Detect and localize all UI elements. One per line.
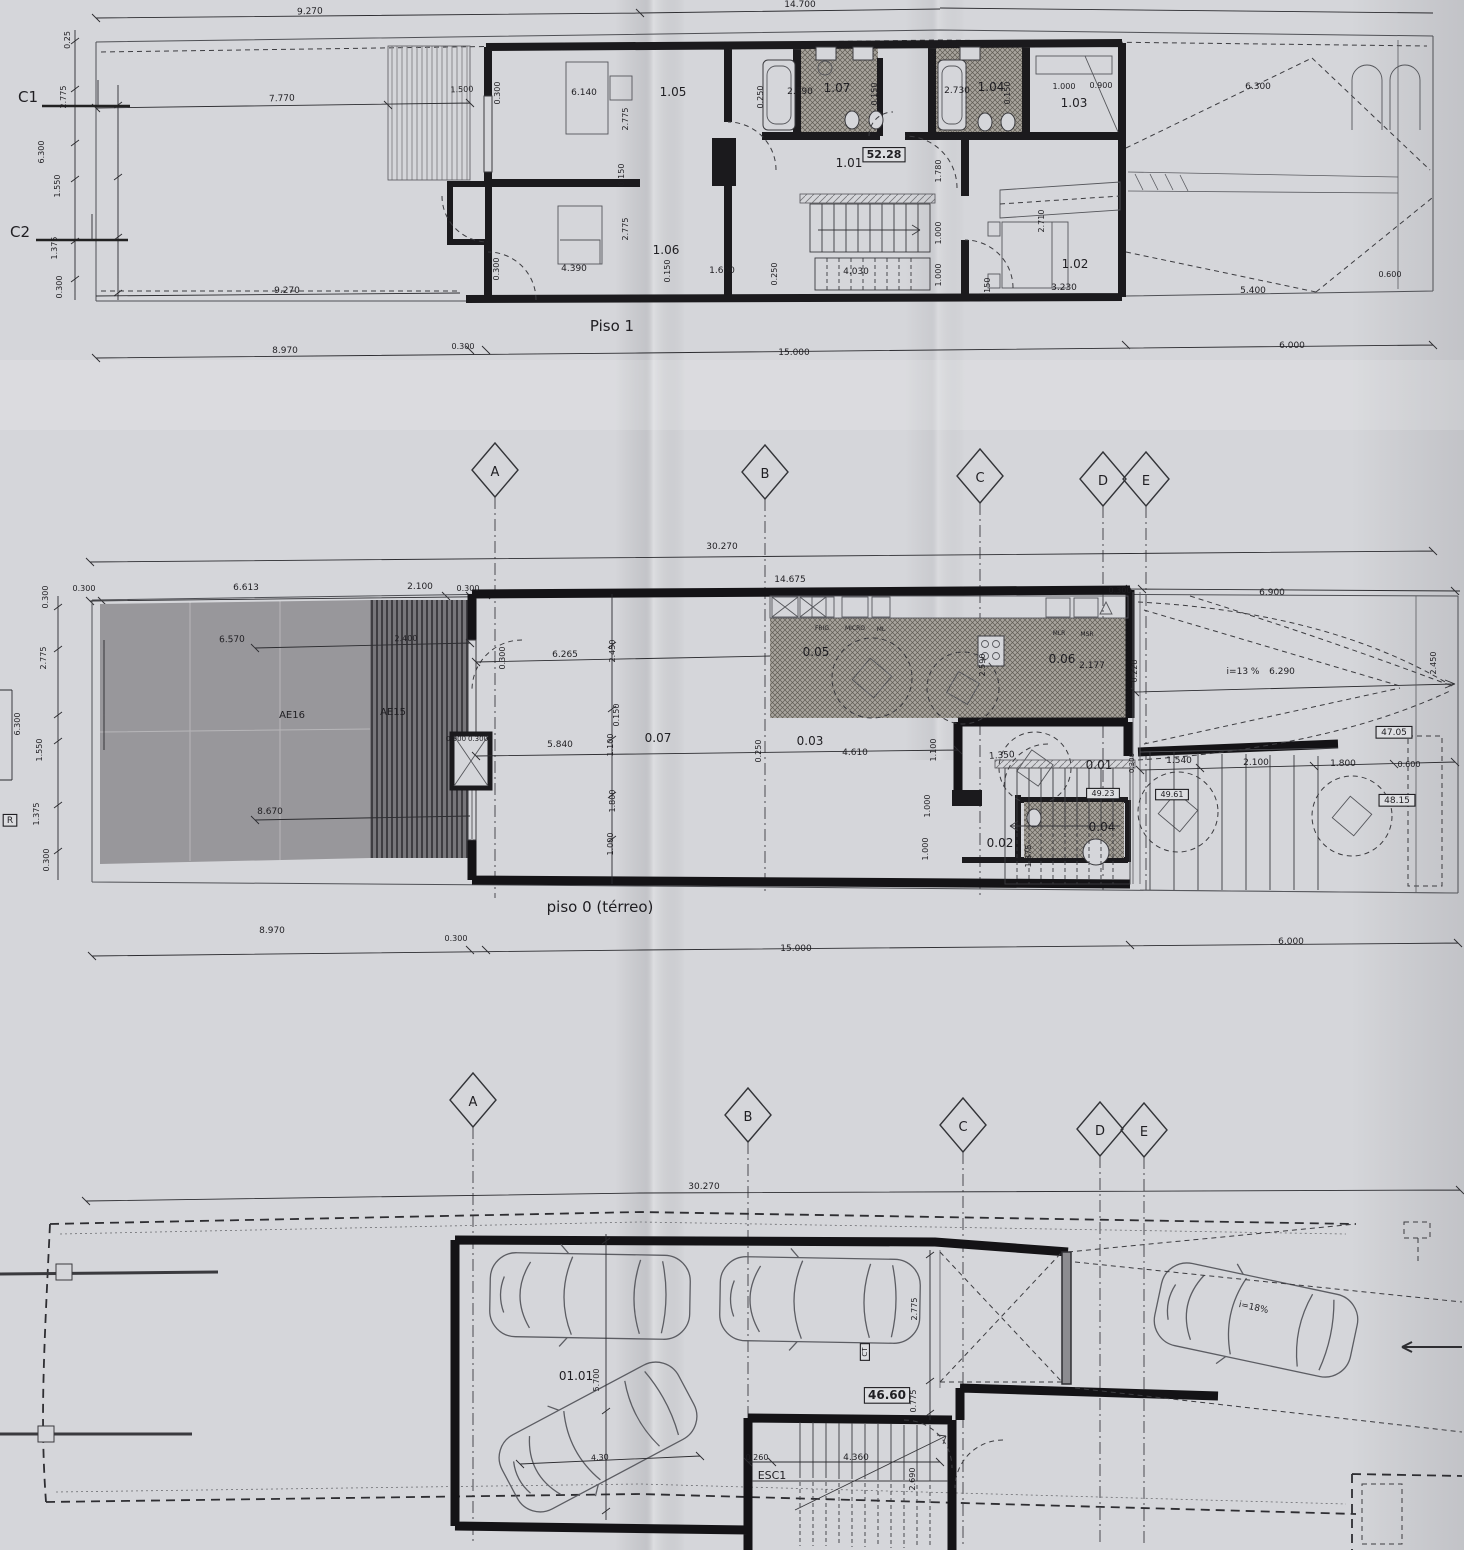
room-label: 1.05 — [660, 85, 687, 99]
dim-label-text: 6.265 — [552, 650, 578, 660]
grid-letter-text: E — [1140, 1125, 1148, 1140]
dim-label: 6.265 — [552, 650, 578, 660]
dim-label-text: 9.270 — [297, 7, 323, 18]
dim-label: 0.300 — [468, 735, 488, 743]
dim-label: 7.770 — [269, 94, 295, 105]
dim-label-text: 1.600 — [709, 266, 735, 276]
level-box: 49.23 — [1087, 788, 1120, 798]
grid-letter: C — [975, 471, 984, 486]
dim-label-text: 0.25 — [63, 31, 72, 49]
grid-letter: D — [1095, 1124, 1105, 1139]
wall-block — [712, 138, 736, 186]
dim-label: 2.177 — [1079, 661, 1105, 671]
appliance-label: MICRO — [845, 625, 865, 632]
sink-icon — [853, 47, 873, 60]
dim-label-text: 2.775 — [910, 1298, 919, 1321]
dim-label: 0.150 — [663, 260, 672, 283]
dim-label: 6.300 — [13, 713, 22, 736]
dim-label: 2.590 — [787, 87, 813, 97]
dim-label-text: 6.000 — [1279, 341, 1305, 351]
dim-label-text: 6.570 — [219, 635, 245, 645]
level-box: 48.15 — [1379, 794, 1415, 806]
room-label: 0.07 — [645, 731, 672, 745]
dim-label: 0.150 — [870, 83, 879, 106]
room-label: 0.06 — [1049, 652, 1076, 666]
deck-ae15 — [370, 600, 470, 858]
dim-label: 2.775 — [621, 218, 630, 241]
dim-label-text: 0.150 — [617, 164, 626, 187]
dim-label-text: 6.300 — [13, 713, 22, 736]
room-label: 0.04 — [1089, 820, 1116, 834]
appliance-label: ML — [877, 626, 886, 633]
dim-label-text: 1.375 — [32, 803, 41, 826]
level-box-text: 48.15 — [1384, 796, 1410, 806]
dim-label: 8.970 — [259, 926, 285, 936]
room-label-text: 0.04 — [1089, 820, 1116, 834]
dim-label: 1.550 — [53, 175, 62, 198]
zone-label-text: AE16 — [279, 710, 305, 721]
section-ref: R — [3, 814, 17, 826]
dim-label: 2.775 — [39, 647, 48, 670]
dim-label: 2.710 — [1037, 210, 1046, 233]
section-ref-text: C1 — [18, 88, 38, 106]
dim-label-text: 1.000 — [934, 264, 943, 287]
appliance-label-text: MICRO — [845, 625, 865, 632]
dim-label-text: 3.230 — [1051, 283, 1077, 293]
dim-label-text: 0.775 — [909, 1390, 918, 1413]
dim-label: 2.730 — [944, 86, 970, 96]
dim-label-text: 1.540 — [1166, 756, 1192, 766]
level-box-text: 49.23 — [1092, 789, 1115, 798]
dim-label: 6.570 — [219, 635, 245, 645]
dim-label-text: 0.150 — [1003, 82, 1012, 105]
dim-label-text: 0.300 — [498, 647, 507, 670]
dim-label: 5.840 — [547, 740, 573, 750]
plan-drawing: 9.27014.700C1C20.252.7756.3001.5501.3750… — [0, 0, 1464, 1550]
ref-label: ESC1 — [758, 1469, 787, 1482]
dim-label: 6.300 — [37, 141, 46, 164]
dim-label-text: 0.300 — [1109, 586, 1132, 595]
dim-label: 4.30 — [591, 1453, 609, 1463]
dim-label: 0.250 — [756, 86, 765, 109]
plan-title-text: Piso 1 — [590, 317, 634, 335]
grid-letter-text: C — [958, 1120, 967, 1135]
section-ref: C2 — [10, 223, 30, 241]
dim-label-text: 6.900 — [1259, 588, 1285, 598]
dim-label: 4.360 — [843, 1453, 869, 1463]
dim-label: 4.030 — [843, 267, 869, 277]
dim-label-text: 0.250 — [770, 263, 779, 286]
dim-label-text: 0.250 — [754, 740, 763, 763]
level-box: 47.05 — [1376, 726, 1412, 738]
dim-label: 0.300 — [41, 586, 50, 609]
room-label: 1.06 — [653, 243, 680, 257]
level-box: 49.61 — [1156, 789, 1189, 799]
deck-hatch-strip — [388, 46, 470, 180]
dim-label-text: 6.300 — [1245, 82, 1271, 92]
level-box: 46.60 — [864, 1388, 909, 1404]
dim-label-text: 1.800 — [1330, 759, 1356, 769]
dim-label: 1.800 — [608, 790, 617, 813]
dim-label-text: 1.350 — [989, 750, 1016, 762]
room-label-text: 1.03 — [1061, 96, 1088, 110]
grid-letter-text: B — [744, 1110, 753, 1125]
room-label-text: 1.04 — [978, 80, 1005, 94]
dim-label-text: 1.000 — [923, 795, 932, 818]
dim-label: 6.300 — [1245, 82, 1271, 92]
dim-label-text: 6.290 — [1269, 667, 1295, 677]
room-label-text: 1.06 — [653, 243, 680, 257]
dim-label-text: 4.610 — [842, 748, 868, 758]
grid-letter: C — [958, 1120, 967, 1135]
dim-label-text: 0.300 — [452, 342, 475, 351]
toilet-icon — [978, 113, 992, 131]
dim-label-text: 2.590 — [978, 654, 987, 677]
grid-letter: B — [761, 467, 770, 482]
dim-label: 2.100 — [407, 582, 433, 592]
dim-label-text: 2.450 — [1429, 652, 1438, 675]
dim-label: 1.000 — [606, 833, 615, 856]
dim-label-text: 0.900 — [446, 735, 466, 743]
dim-label: 1.550 — [35, 739, 44, 762]
dim-label: 4.390 — [561, 264, 587, 274]
toilet-icon — [845, 111, 859, 129]
dim-label-text: 2.450 — [608, 640, 617, 663]
room-label: 0.03 — [797, 734, 824, 748]
grid-letter-text: A — [469, 1095, 478, 1110]
dim-label-text: 0.600 — [1398, 760, 1421, 769]
dim-label: 0.600 — [1398, 760, 1421, 769]
dim-label-text: 0.300 — [73, 584, 96, 593]
washbasin-icon — [1083, 839, 1109, 865]
dim-label: 1.780 — [934, 160, 943, 183]
dim-label: 1.375 — [32, 803, 41, 826]
dim-label-text: 0.300 — [445, 934, 468, 943]
dim-label: 1.100 — [929, 739, 938, 762]
section-ref-text: R — [7, 816, 13, 826]
ref-label: CT — [860, 1344, 869, 1361]
dim-label: 0.300 — [457, 584, 480, 593]
dim-label-text: 1.000 — [921, 838, 930, 861]
dim-label: 14.700 — [784, 0, 816, 10]
dim-label: 0.150 — [617, 164, 626, 187]
ref-label-text: CT — [861, 1347, 869, 1357]
appliance-label-text: MSR — [1080, 631, 1093, 638]
dim-label: 0.300 — [492, 258, 501, 281]
grid-letter-text: C — [975, 471, 984, 486]
room-label: 1.01 — [836, 156, 863, 170]
room-label-text: 0.02 — [987, 836, 1014, 850]
dim-label-text: 2.590 — [787, 87, 813, 97]
dim-label: 0.300 — [1128, 753, 1136, 773]
grid-letter-text: B — [761, 467, 770, 482]
room-label-text: 0.01 — [1086, 758, 1113, 772]
room-label: 0.05 — [803, 645, 830, 659]
dim-label: 0.300 — [445, 934, 468, 943]
room-label: 1.07 — [824, 81, 851, 95]
room-label: 1.04 — [978, 80, 1005, 94]
grid-letter: A — [469, 1095, 478, 1110]
dim-label: 0.150 — [612, 704, 621, 727]
dim-label-text: 30.270 — [706, 542, 738, 552]
sink-icon — [960, 47, 980, 60]
dim-label: 15.000 — [778, 348, 810, 358]
paper-edge-shade — [1350, 0, 1464, 1550]
dim-label: 9.270 — [274, 286, 300, 296]
ramp-slope-label-text: i=13 % — [1227, 667, 1260, 677]
grid-letter: B — [744, 1110, 753, 1125]
dim-label: 2.100 — [1243, 758, 1269, 768]
plan-title: Piso 1 — [590, 317, 634, 335]
dim-label-text: 4.360 — [843, 1453, 869, 1463]
dim-label: 1.000 — [1053, 82, 1076, 91]
dim-label-text: 0.300 — [493, 82, 502, 105]
dim-label-text: 7.770 — [269, 94, 295, 105]
dim-label-text: 2.100 — [407, 582, 433, 592]
dim-label-text: 1.100 — [929, 739, 938, 762]
dim-label: 1.000 — [923, 795, 932, 818]
dim-label-text: 6.140 — [571, 88, 597, 98]
level-box-text: 47.05 — [1381, 728, 1407, 738]
appliance-label: MLR — [1053, 630, 1066, 637]
dim-label-text: 1.000 — [606, 833, 615, 856]
dim-label: 0.25 — [63, 31, 72, 49]
grid-letter: E — [1140, 1125, 1148, 1140]
dim-label-text: 0.250 — [756, 86, 765, 109]
dim-label-text: 1.100 — [606, 734, 615, 757]
dim-label: 1.350 — [989, 750, 1016, 762]
dim-label-text: 8.670 — [257, 807, 283, 817]
dim-label-text: 2.775 — [59, 86, 68, 109]
dim-label-text: 30.270 — [688, 1182, 720, 1192]
dim-label: 6.900 — [1259, 588, 1285, 598]
dim-label: 8.670 — [257, 807, 283, 817]
dim-label-text: 0.900 — [1090, 81, 1113, 90]
bidet-icon — [1001, 113, 1015, 131]
room-label-text: 0.03 — [797, 734, 824, 748]
zone-label: AE15 — [380, 707, 406, 718]
dim-label-text: 2.775 — [621, 108, 630, 131]
dim-label-text: 5.400 — [1240, 286, 1266, 296]
dim-label-text: 1.375 — [1024, 845, 1033, 868]
dim-label-text: 0.300 — [1128, 753, 1136, 773]
dim-label: 5.400 — [1240, 286, 1266, 296]
dim-label: 4.610 — [842, 748, 868, 758]
plan-title-text: piso 0 (térreo) — [547, 898, 654, 916]
dim-label: 0.300 — [42, 849, 51, 872]
dim-label: 5.700 — [592, 1369, 601, 1392]
grid-letter: E — [1142, 474, 1150, 489]
dim-label-text: 14.700 — [784, 0, 816, 10]
dim-label-text: 1.780 — [934, 160, 943, 183]
grid-letter-text: D — [1098, 474, 1108, 489]
grid-letter: A — [491, 465, 500, 480]
dim-label-text: 0.300 — [55, 276, 64, 299]
dim-label: 2.690 — [908, 1468, 917, 1491]
dim-label-text: 4.30 — [591, 1453, 609, 1463]
dim-label-text: 0.300 — [457, 584, 480, 593]
dim-label: 0.900 — [446, 735, 466, 743]
dim-label-text: 2.400 — [394, 634, 417, 643]
dim-label-text: 0.300 — [468, 735, 488, 743]
dim-label-text: 2.177 — [1079, 661, 1105, 671]
dim-label: 0.300 — [493, 82, 502, 105]
room-label-text: 0.07 — [645, 731, 672, 745]
room-label: 0.02 — [987, 836, 1014, 850]
dim-label-text: 1.550 — [35, 739, 44, 762]
dim-label-text: 1.000 — [1053, 82, 1076, 91]
dim-label-text: 2.775 — [39, 647, 48, 670]
dim-label: 1.375 — [1024, 845, 1033, 868]
dim-label: 0.300 — [498, 647, 507, 670]
room-label: 01.01 — [559, 1369, 593, 1383]
ref-label-text: ESC1 — [758, 1469, 787, 1482]
dim-label-text: 0.228 — [1130, 660, 1139, 683]
dim-label: 2.400 — [394, 634, 417, 643]
dim-label: 3.230 — [1051, 283, 1077, 293]
appliance-label: MSR — [1080, 631, 1093, 638]
window — [484, 96, 492, 172]
dim-label: 1.000 — [934, 264, 943, 287]
grid-letter: D — [1098, 474, 1108, 489]
room-label: 0.01 — [1086, 758, 1113, 772]
room-label-text: 0.06 — [1049, 652, 1076, 666]
dim-label-text: 4.030 — [843, 267, 869, 277]
dim-label: 1.800 — [1330, 759, 1356, 769]
dim-label-text: 0.300 — [41, 586, 50, 609]
dim-label: 0.150 — [1003, 82, 1012, 105]
dim-label-text: 1.375 — [50, 237, 59, 260]
dim-label: 0.300 — [73, 584, 96, 593]
kitchen-floor — [770, 618, 1128, 718]
room-label-text: 1.05 — [660, 85, 687, 99]
dim-label-text: 0.150 — [870, 83, 879, 106]
room-label: 1.02 — [1062, 257, 1089, 271]
dim-label: 0.228 — [1130, 660, 1139, 683]
dim-label-text: 0.600 — [1379, 270, 1402, 279]
dim-label-text: 1.500 — [450, 85, 473, 95]
dim-label: 1.000 — [934, 222, 943, 245]
dim-label: 1.000 — [921, 838, 930, 861]
dim-label: 0.600 — [1379, 270, 1402, 279]
dim-label: 15.000 — [780, 944, 812, 954]
dim-label: 0.260 — [746, 1453, 769, 1462]
dim-label-text: 15.000 — [778, 348, 810, 358]
dim-label: 2.775 — [621, 108, 630, 131]
dim-label: 0.250 — [754, 740, 763, 763]
appliance-label-text: MLR — [1053, 630, 1066, 637]
dim-label-text: 9.270 — [274, 286, 300, 296]
dim-label: 6.000 — [1278, 937, 1304, 947]
dim-label: 1.500 — [450, 85, 473, 95]
room-label-text: 1.01 — [836, 156, 863, 170]
dim-label-text: 4.390 — [561, 264, 587, 274]
scanned-plan-sheet: 9.27014.700C1C20.252.7756.3001.5501.3750… — [0, 0, 1464, 1550]
dim-label-text: 8.970 — [272, 346, 298, 356]
dim-label-text: 15.000 — [780, 944, 812, 954]
dim-label-text: 2.730 — [944, 86, 970, 96]
dim-label: 0.300 — [55, 276, 64, 299]
dim-label: 2.775 — [59, 86, 68, 109]
dim-label-text: 2.775 — [621, 218, 630, 241]
nook — [450, 184, 488, 242]
room-label-text: 01.01 — [559, 1369, 593, 1383]
dim-label: 6.290 — [1269, 667, 1295, 677]
room-label-text: 1.02 — [1062, 257, 1089, 271]
appliance-label-text: FRIG — [815, 625, 829, 632]
plan-title: piso 0 (térreo) — [547, 898, 654, 916]
dim-label-text: 6.300 — [37, 141, 46, 164]
level-box-text: 52.28 — [867, 148, 902, 161]
dim-label-text: 0.150 — [612, 704, 621, 727]
dim-label: 0.300 — [452, 342, 475, 351]
grid-letter-text: A — [491, 465, 500, 480]
appliance-label-text: ML — [877, 626, 886, 633]
dim-label: 2.450 — [608, 640, 617, 663]
dim-label-text: 6.000 — [1278, 937, 1304, 947]
room-label: 1.03 — [1061, 96, 1088, 110]
dim-label-text: 0.150 — [983, 278, 992, 301]
dim-label-text: 14.675 — [774, 575, 806, 585]
dim-label: 1.100 — [606, 734, 615, 757]
dim-label-text: 0.300 — [492, 258, 501, 281]
level-box-text: 46.60 — [868, 1388, 906, 1402]
dim-label: 0.250 — [770, 263, 779, 286]
dim-label: 8.970 — [272, 346, 298, 356]
dim-label-text: 5.840 — [547, 740, 573, 750]
dim-label-text: 1.550 — [53, 175, 62, 198]
dim-label: 1.600 — [709, 266, 735, 276]
dim-label: 0.900 — [1090, 81, 1113, 90]
fold-crease-horizontal — [0, 360, 1464, 430]
room-label-text: 1.07 — [824, 81, 851, 95]
dim-label: 30.270 — [706, 542, 738, 552]
dim-label-text: 8.970 — [259, 926, 285, 936]
dim-label: 30.270 — [688, 1182, 720, 1192]
dim-label: 1.540 — [1166, 756, 1192, 766]
zone-label: AE16 — [279, 710, 305, 721]
dim-label-text: 5.700 — [592, 1369, 601, 1392]
sink-icon — [816, 47, 836, 60]
section-ref-text: C2 — [10, 223, 30, 241]
dim-label-text: 0.300 — [42, 849, 51, 872]
zone-label-text: AE15 — [380, 707, 406, 718]
ramp-slope-label: i=13 % — [1227, 667, 1260, 677]
dim-label-text: 0.260 — [746, 1453, 769, 1462]
dim-label: 2.590 — [978, 654, 987, 677]
level-box-text: 49.61 — [1161, 790, 1184, 799]
dim-label-text: 6.613 — [233, 583, 259, 593]
dim-label: 6.000 — [1279, 341, 1305, 351]
dim-label: 0.775 — [909, 1390, 918, 1413]
dim-label: 6.613 — [233, 583, 259, 593]
dim-label: 2.775 — [910, 1298, 919, 1321]
dim-label-text: 2.100 — [1243, 758, 1269, 768]
dim-label: 6.140 — [571, 88, 597, 98]
level-box: 52.28 — [863, 148, 905, 162]
section-ref: C1 — [18, 88, 38, 106]
dim-label-text: 1.800 — [608, 790, 617, 813]
dim-label: 2.450 — [1429, 652, 1438, 675]
dim-label-text: 2.710 — [1037, 210, 1046, 233]
dim-label: 0.300 — [1109, 586, 1132, 595]
dim-label: 9.270 — [297, 7, 323, 18]
dim-label-text: 2.690 — [908, 1468, 917, 1491]
appliance-label: FRIG — [815, 625, 829, 632]
dim-label: 1.375 — [50, 237, 59, 260]
grid-letter-text: D — [1095, 1124, 1105, 1139]
dim-label: 0.150 — [983, 278, 992, 301]
